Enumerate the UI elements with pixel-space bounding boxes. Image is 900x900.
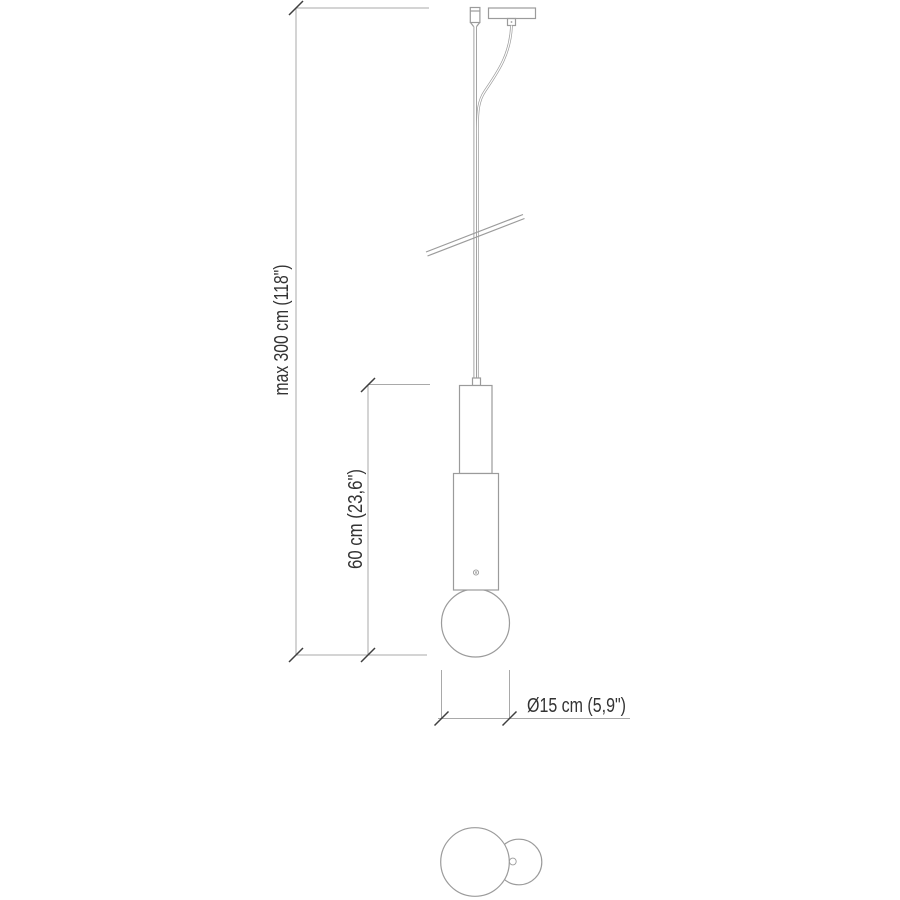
diameter-label: Ø15 cm (5,9") — [527, 695, 626, 717]
cord-outlet-dot — [511, 21, 513, 23]
cable-connector — [473, 378, 481, 386]
break-line-upper — [426, 215, 523, 253]
body-height-label: 60 cm (23,6") — [345, 469, 367, 569]
lamp-front-view — [442, 378, 510, 657]
break-line-lower — [428, 219, 525, 257]
canopy-plate — [489, 8, 536, 19]
technical-drawing-svg: max 300 cm (118") 60 cm (23,6") Ø15 cm (… — [0, 0, 900, 900]
drawing-canvas: max 300 cm (118") 60 cm (23,6") Ø15 cm (… — [0, 0, 900, 900]
sphere-diffuser — [442, 589, 510, 657]
sphere-circle — [441, 828, 510, 897]
power-cord — [477, 26, 511, 379]
dimension-diameter: Ø15 cm (5,9") — [435, 670, 631, 726]
cable-grip-cylinder — [470, 8, 480, 23]
ceiling-mount — [470, 8, 535, 27]
cord-outer — [477, 26, 511, 379]
break-line — [426, 215, 525, 257]
lamp-top-view — [441, 828, 542, 897]
connector-circle — [509, 858, 516, 865]
dimension-body-height: 60 cm (23,6") — [345, 378, 430, 662]
upper-tube — [460, 386, 493, 474]
max-height-label: max 300 cm (118") — [271, 265, 293, 396]
suspension-cable — [474, 27, 477, 379]
